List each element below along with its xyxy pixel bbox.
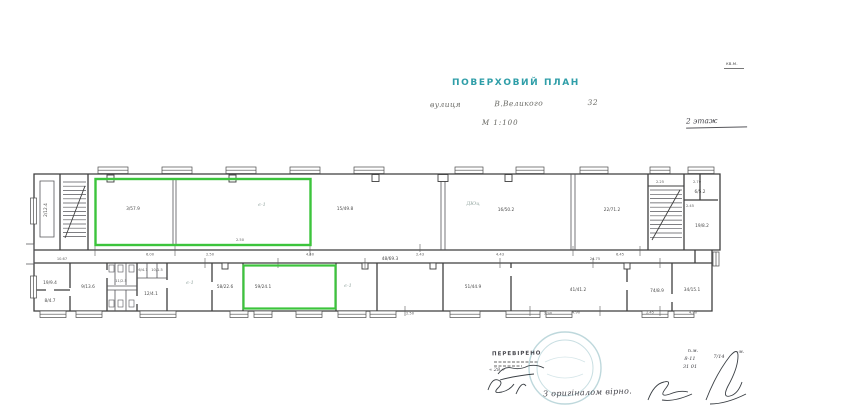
plan-label: 3/57.9 xyxy=(126,206,140,212)
highlighted-premises xyxy=(96,179,336,309)
plan-label: 16/50.2 xyxy=(498,207,515,213)
plan-label: є-1 xyxy=(344,283,352,289)
plan-label: 2.45 xyxy=(686,204,694,208)
signature-certify xyxy=(648,382,692,401)
plan-label: 19/8.2 xyxy=(695,223,709,229)
plan-label: « 28 » xyxy=(489,367,505,373)
plan-label: 11/2.5 xyxy=(115,279,127,283)
signature-left xyxy=(488,380,526,394)
plan-label: 24.75 xyxy=(590,257,600,261)
plan-label: 2.43 xyxy=(416,253,424,257)
plan-label: 4.90 xyxy=(572,311,581,315)
plan-label: 2.50 xyxy=(206,253,215,257)
plan-label: 15/49.8 xyxy=(337,206,354,212)
plan-label: 31 01 xyxy=(683,364,697,370)
plan-label: 34/15.1 xyxy=(684,287,701,293)
plan-label: 6.00 xyxy=(146,253,155,257)
plan-label: 12/4.1 xyxy=(144,291,158,297)
plan-label: 2/12.4 xyxy=(43,203,49,217)
plan-label: 19/9.4 xyxy=(43,280,57,286)
highlight-rect-upper xyxy=(96,179,311,245)
plan-label: 41/41.2 xyxy=(570,287,587,293)
plan-label: 6.45 xyxy=(616,253,624,257)
plan-label: 58/22.6 xyxy=(217,284,234,290)
plan-label: 74/8.9 xyxy=(650,288,664,294)
staircase-right xyxy=(650,190,682,237)
plan-label: 4.43 xyxy=(496,253,504,257)
plan-label: 4.90 xyxy=(689,311,698,315)
plan-label: 2.90 xyxy=(544,312,553,316)
plan-label: 7/14 xyxy=(713,354,724,360)
staircase-diagonals xyxy=(65,186,684,240)
plan-label: є-1 xyxy=(258,202,266,208)
plan-label: ДЮц xyxy=(465,201,480,207)
plan-label: 51/44.9 xyxy=(465,284,482,290)
side-windows xyxy=(31,198,720,298)
plan-label: 59/24.1 xyxy=(255,284,272,290)
scanned-floorplan-page: ПОВЕРХОВИЙ ПЛАН вулиця В.Великого 32 М 1… xyxy=(0,0,850,410)
wall-stubs xyxy=(107,175,630,270)
plan-label: 2.25 xyxy=(656,180,664,184)
plan-label: 8/4.7 xyxy=(44,298,55,304)
staircase-left xyxy=(63,182,86,237)
plan-label: 6/5.2 xyxy=(694,189,705,195)
plan-label: є-1 xyxy=(186,280,194,286)
plan-label: 6/4.1 xyxy=(138,268,147,272)
plan-label: 8-11 xyxy=(684,356,695,362)
plan-labels: 2/12.43/57.92.50є-115/49.8ДЮц16/50.222/7… xyxy=(43,180,745,373)
plan-label: п.м. xyxy=(688,348,699,354)
plan-label: 10/1.5 xyxy=(151,268,163,272)
plan-label: 22/71.2 xyxy=(604,207,621,213)
reviewed-stamp-text: ПЕРЕВІРЕНО xyxy=(492,351,542,358)
plan-label: 4.40 xyxy=(306,253,315,257)
plan-walls xyxy=(26,174,720,311)
plan-label: —м. xyxy=(734,349,745,355)
plan-label: 2.45 xyxy=(646,311,654,315)
plan-label: 2.70 xyxy=(693,180,702,184)
plan-label: 10.67 xyxy=(57,257,67,261)
signatures xyxy=(488,352,746,405)
plan-label: 9/13.6 xyxy=(81,284,95,290)
floor-plan-drawing: 2/12.43/57.92.50є-115/49.8ДЮц16/50.222/7… xyxy=(0,0,850,410)
signature-bottom-right xyxy=(706,352,746,405)
plan-label: 48/69.3 xyxy=(382,256,399,262)
plan-label: 2.50 xyxy=(236,238,245,242)
plan-label: 2.50 xyxy=(406,312,415,316)
